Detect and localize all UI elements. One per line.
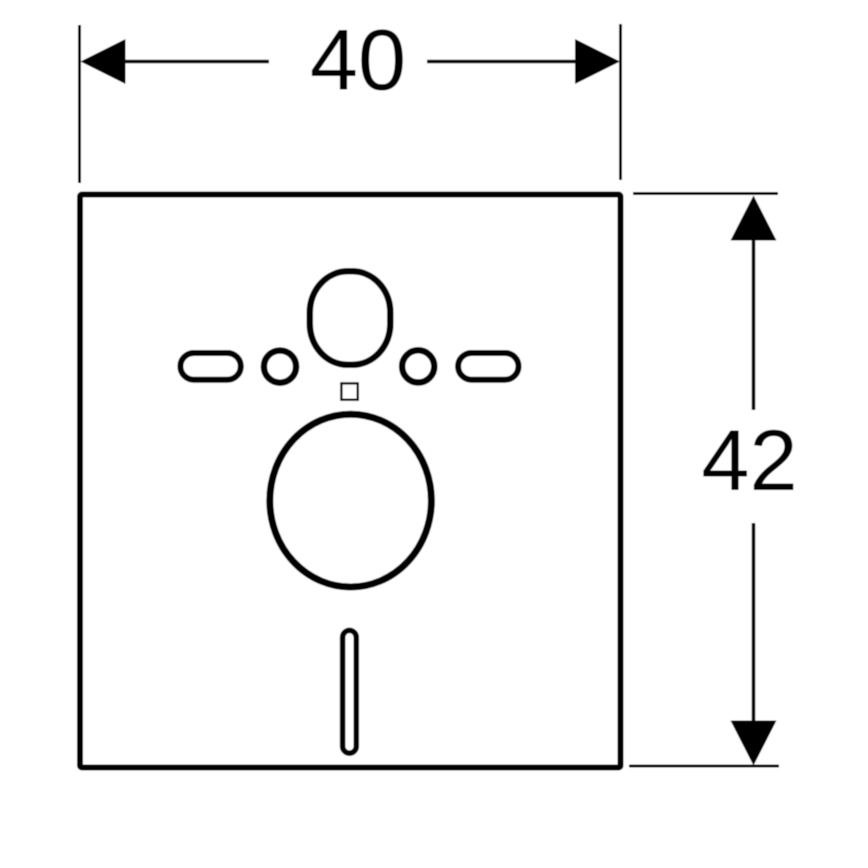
svg-text:40: 40 — [310, 13, 406, 109]
svg-text:42: 42 — [701, 413, 797, 509]
